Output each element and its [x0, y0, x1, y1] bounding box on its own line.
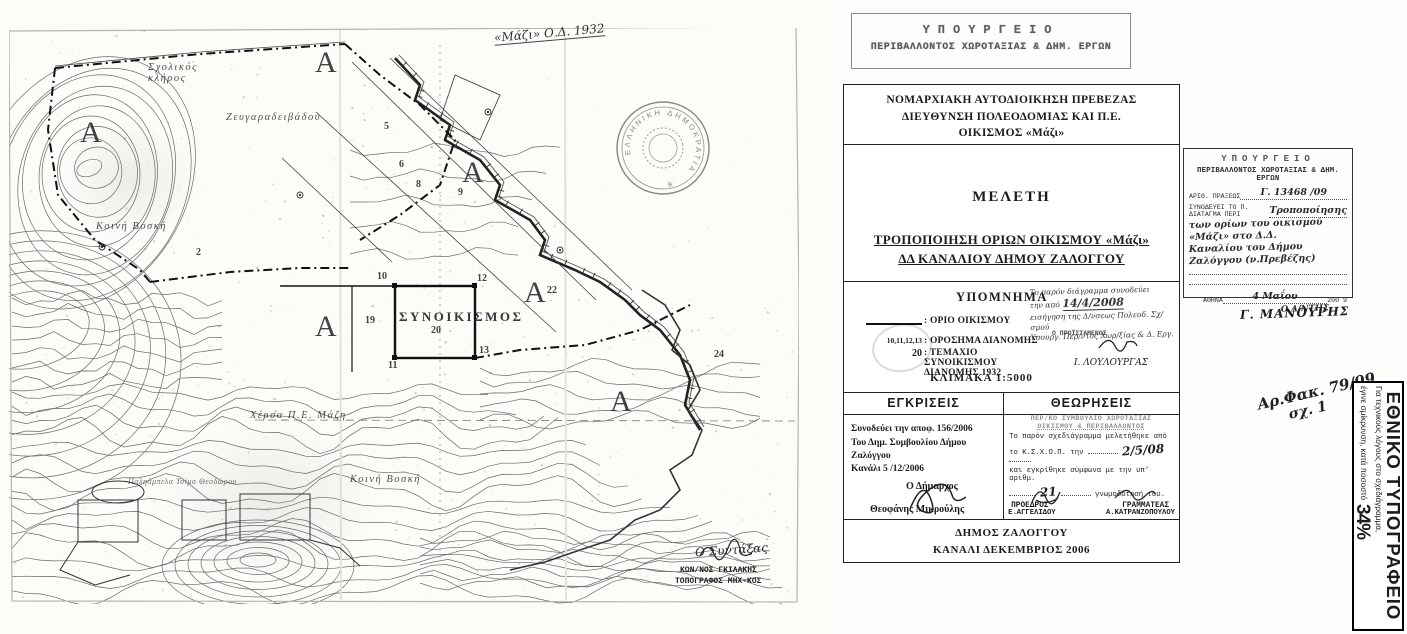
authority-line2: ΔΙΕΥΘΥΝΣΗ ΠΟΛΕΟΔΟΜΙΑΣ ΚΑΙ Π.Ε. — [844, 109, 1179, 126]
president-name: Ε.ΑΓΓΕΛΙΔΟΥ — [1008, 509, 1055, 517]
validations-column: ΠΕΡ/ΚΟ ΣΥΜΒΟΥΛΙΟ ΧΩΡΟΤΑΞΙΑΣ ΟΙΚΙΣΜΟΥ & Π… — [1003, 415, 1179, 520]
decree-subject-line3: Καναλίου του Δήμου Ζαλόγγου (ν.Πρεβέζης) — [1189, 240, 1348, 268]
svg-text:ΕΛΛΗΝΙΚΗ ΔΗΜΟΚΡΑΤΙΑ: ΕΛΛΗΝΙΚΗ ΔΗΜΟΚΡΑΤΙΑ — [615, 100, 709, 188]
decree-subject: Τροποποίησης — [1269, 205, 1347, 216]
place-date: ΚΑΝΑΛΙ ΔΕΚΕΜΒΡΙΟΣ 2006 — [844, 542, 1179, 559]
approval-line: Του Δημ. Συμβουλίου Δήμου Ζαλόγγου — [851, 437, 1003, 463]
officer-name: Ι. ΛΟΥΛΟΥΡΓΑΣ — [1074, 358, 1148, 368]
lot-lines — [282, 58, 632, 332]
legend-item-label: : ΟΡΟΣΗΜΑ ΔΙΑΝΟΜΗΣ — [924, 336, 1038, 346]
authority-line3: ΟΙΚΙΣΜΟΣ «Μάζι» — [844, 125, 1179, 142]
stamp-date: 4 Μαΐου — [1252, 291, 1297, 302]
authority-header: ΝΟΜΑΡΧΙΑΚΗ ΑΥΤΟΔΙΟΙΚΗΣΗ ΠΡΕΒΕΖΑΣ ΔΙΕΥΘΥΝ… — [844, 85, 1179, 145]
validation-line: Το παρόν σχεδιάγραμμα μελετήθηκε από — [1009, 433, 1179, 441]
stamp-subtitle: ΠΕΡΙΒΑΛΛΟΝΤΟΣ ΧΩΡΟΤΑΞΙΑΣ & ΔΗΜ. ΕΡΓΩΝ — [1189, 167, 1347, 183]
authority-line1: ΝΟΜΑΡΧΙΑΚΗ ΑΥΤΟΔΙΟΙΚΗΣΗ ΠΡΕΒΕΖΑΣ — [844, 92, 1179, 109]
decree-subject-line2: των ορίων του οικισμού «Μάζι» στο Δ.Δ. — [1189, 216, 1348, 244]
title-block: ΝΟΜΑΡΧΙΑΚΗ ΑΥΤΟΔΙΟΙΚΗΣΗ ΠΡΕΒΕΖΑΣ ΔΙΕΥΘΥΝ… — [843, 84, 1180, 563]
legend-section: ΥΠΟΜΝΗΜΑ : ΟΡΙΟ ΟΙΚΙΣΜΟΥ 10,11,12,13 : Ο… — [844, 282, 1179, 393]
study-title-section: ΜΕΛΕΤΗ ΤΡΟΠΟΠΟΙΗΣΗ ΟΡΙΩΝ ΟΙΚΙΣΜΟΥ «Μάζι»… — [844, 145, 1179, 282]
fold-line — [565, 30, 566, 600]
study-label: ΜΕΛΕΤΗ — [844, 189, 1179, 206]
secretary-signature — [1111, 484, 1157, 504]
surveyor-title: ΤΟΠΟΓΡΑΦΟΣ ΜΗΧ-ΚΟΣ — [675, 577, 761, 586]
ministry-action-stamp: ΥΠΟΥΡΓΕΙΟ ΠΕΡΙΒΑΛΛΟΝΤΟΣ ΧΩΡΟΤΑΞΙΑΣ & ΔΗΜ… — [1183, 148, 1353, 298]
praxis-label: ΑΡΙΘ. ΠΡΑΞΕΩΣ — [1189, 193, 1240, 200]
validation-line: το Κ.Σ.Χ.Ο.Π. την 2/5/08 — [1009, 443, 1179, 465]
annotation-date: 14/4/2008 — [1062, 296, 1124, 312]
fold-line — [340, 30, 341, 600]
city-label: ΑΘΗΝΑ — [1203, 297, 1223, 304]
footer-section: ΔΗΜΟΣ ΖΑΛΟΓΓΟΥ ΚΑΝΑΛΙ ΔΕΚΕΜΒΡΙΟΣ 2006 — [844, 520, 1179, 562]
reduction-percent: 34% — [1352, 504, 1373, 539]
dotted-rule — [1189, 275, 1347, 285]
municipality-name: ΔΗΜΟΣ ΖΑΛΟΓΓΟΥ — [844, 525, 1179, 542]
stamp-title: ΥΠΟΥΡΓΕΙΟ — [1189, 154, 1347, 164]
mayor-name: Θεοφάνης Μικρούλης — [870, 504, 964, 515]
legend-item-label: : ΟΡΙΟ ΟΙΚΙΣΜΟΥ — [924, 316, 1011, 326]
hellenic-republic-seal: ΕΛΛΗΝΙΚΗ ΔΗΜΟΚΡΑΤΙΑ ✳ — [608, 93, 717, 202]
map-drawing: ΕΛΛΗΝΙΚΗ ΔΗΜΟΚΡΑΤΙΑ ✳ — [0, 0, 820, 634]
settlement-boundary — [48, 44, 690, 358]
contour-lines — [0, 16, 782, 612]
legend-items: : ΟΡΙΟ ΟΙΚΙΣΜΟΥ 10,11,12,13 : ΟΡΟΣΗΜΑ ΔΙ… — [850, 316, 1050, 380]
praxis-number: Γ. 13468 /09 — [1261, 187, 1327, 198]
approvals-section: ΕΓΚΡΙΣΕΙΣ ΘΕΩΡΗΣΕΙΣ Συνοδεύει την αποφ. … — [844, 393, 1179, 520]
approval-line: Συνοδεύει την αποφ. 156/2006 — [851, 423, 1003, 436]
grid-line-horizontal — [255, 420, 795, 421]
traverse-line — [55, 42, 345, 66]
legend-item-landmarks: 10,11,12,13 : ΟΡΟΣΗΜΑ ΔΙΑΝΟΜΗΣ — [850, 336, 1050, 346]
study-title-line2: ΔΔ ΚΑΝΑΛΙΟΥ ΔΗΜΟΥ ΖΑΛΟΓΓΟΥ — [844, 251, 1179, 267]
surveyor-name: ΚΩΝ/ΝΟΣ ΓΚΙΛΑΚΗΣ — [680, 566, 757, 575]
topographic-map: ΕΛΛΗΝΙΚΗ ΔΗΜΟΚΡΑΤΙΑ ✳ Σχολικός κλήροςΖευ… — [0, 0, 820, 634]
council-stamp-line: ΟΙΚΙΣΜΟΥ & ΠΕΡΙΒΑΛΛΟΝΤΟΣ — [1003, 423, 1179, 431]
legend-item-symbol: 20 — [850, 348, 922, 359]
study-title-line1: ΤΡΟΠΟΠΟΙΗΣΗ ΟΡΙΩΝ ΟΙΚΙΣΜΟΥ «Μάζι» — [844, 232, 1179, 248]
map-scale: ΚΛΙΜΑΚΑ 1:5000 — [844, 372, 1119, 384]
validations-heading: ΘΕΩΡΗΣΕΙΣ — [1003, 393, 1179, 415]
stream — [510, 290, 702, 570]
scanned-plan-sheet: ΕΛΛΗΝΙΚΗ ΔΗΜΟΚΡΑΤΙΑ ✳ Σχολικός κλήροςΖευ… — [0, 0, 1407, 634]
approvals-heading: ΕΓΚΡΙΣΕΙΣ — [844, 393, 1003, 415]
printing-office-name: ΕΘΝΙΚΟ ΤΥΠΟΓΡΑΦΕΙΟ — [1383, 386, 1402, 626]
ministry-stamp-top-subtitle: ΠΕΡΙΒΑΛΛΟΝΤΟΣ ΧΩΡΟΤΑΞΙΑΣ & ΔΗΜ. ΕΡΓΩΝ — [852, 42, 1130, 53]
ministry-stamp-top-title: ΥΠΟΥΡΓΕΙΟ — [852, 23, 1130, 37]
validation-line: και εγκρίθηκε σύμφωνα με την υπ’ αριθμ. — [1009, 467, 1179, 483]
council-stamp-line: ΠΕΡ/ΚΟ ΣΥΜΒΟΥΛΙΟ ΧΩΡΟΤΑΞΙΑΣ — [1003, 415, 1179, 423]
reduction-note-line2: έγινε σμίκρυνση, κατά ποσοστό34% — [1351, 386, 1373, 626]
officer-signature — [1096, 334, 1140, 354]
parcel-20 — [280, 283, 477, 372]
seal-star: ✳ — [666, 180, 675, 190]
reduction-note-line1: Για τεχνικούς λόγους στο σχεδιάγραμμα, — [1373, 386, 1383, 626]
director-signature-name: Γ. ΜΑΝΟΥΡΗΣ — [1240, 304, 1350, 322]
printing-office-box: ΕΘΝΙΚΟ ΤΥΠΟΓΡΑΦΕΙΟ Για τεχνικούς λόγους … — [1352, 381, 1404, 631]
boundary-line-symbol — [866, 323, 922, 325]
approvals-column: Συνοδεύει την αποφ. 156/2006 Του Δημ. Συ… — [844, 415, 1003, 520]
president-signature — [1026, 484, 1066, 506]
ministry-stamp-top: ΥΠΟΥΡΓΕΙΟ ΠΕΡΙΒΑΛΛΟΝΤΟΣ ΧΩΡΟΤΑΞΙΑΣ & ΔΗΜ… — [851, 13, 1131, 69]
accompanies-label: ΣΥΝΟΔΕΥΕΙ ΤΟ Π. ΔΙΑΤΑΓΜΑ ΠΕΡΙ — [1189, 204, 1269, 218]
legend-item-boundary: : ΟΡΙΟ ΟΙΚΙΣΜΟΥ — [850, 316, 1050, 334]
seal-text: ΕΛΛΗΝΙΚΗ ΔΗΜΟΚΡΑΤΙΑ — [615, 100, 709, 188]
validation-date: 2/5/08 — [1122, 442, 1165, 459]
secretary-name: Α.ΚΑΤΡΑΝΖΟΠΟΥΛΟΥ — [1106, 509, 1175, 517]
legend-item-symbol: 10,11,12,13 — [850, 336, 922, 345]
